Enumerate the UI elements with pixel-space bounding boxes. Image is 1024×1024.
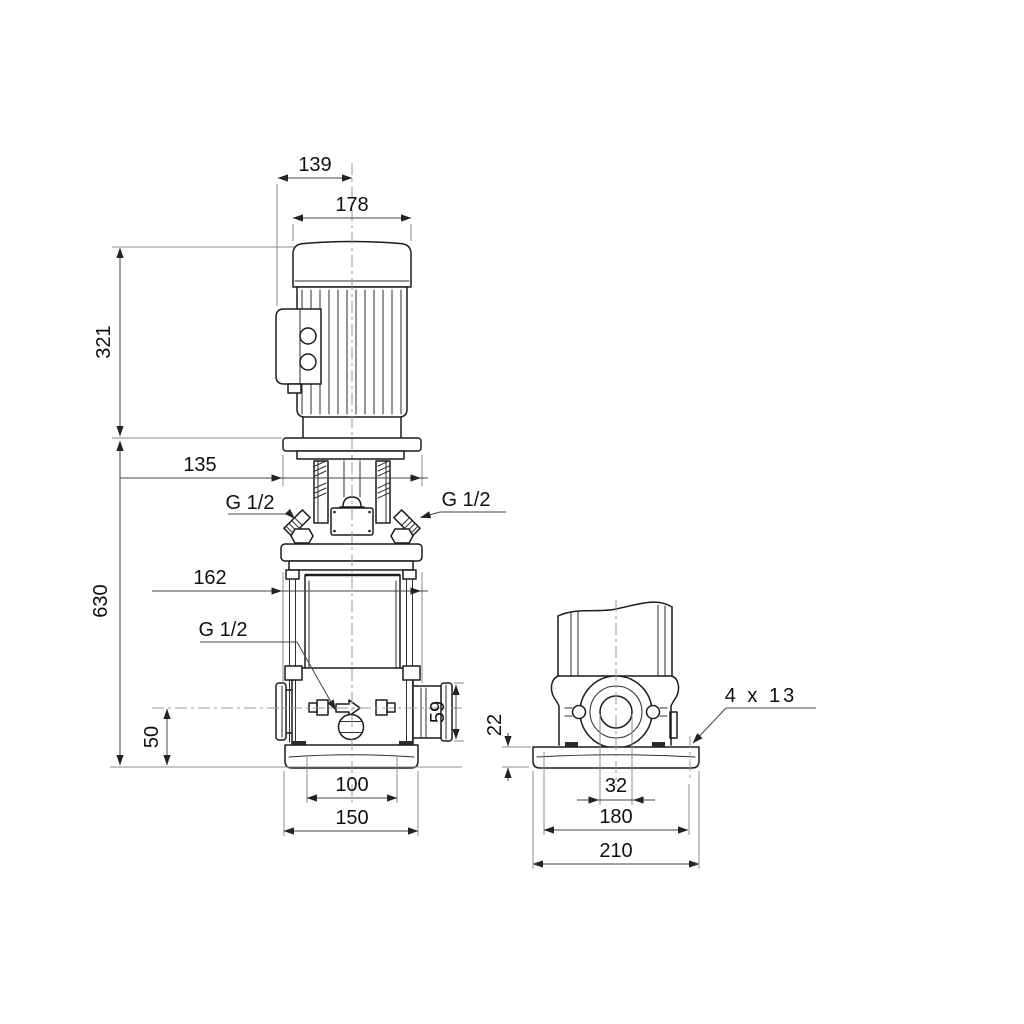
dim-port-center-height: 50 bbox=[141, 709, 167, 765]
pump-dimensional-drawing: 139 178 321 630 135 162 G 1/2 bbox=[0, 0, 1024, 1024]
pump-dimensional-drawing-page: 139 178 321 630 135 162 G 1/2 bbox=[0, 0, 1024, 1024]
dim-label-32: 32 bbox=[605, 775, 627, 797]
dim-motor-height: 321 bbox=[93, 247, 294, 438]
drain-plug bbox=[339, 715, 364, 740]
note-bolt-holes: 4 x 13 bbox=[693, 685, 816, 743]
dim-label-630: 630 bbox=[90, 584, 112, 617]
dim-label-210: 210 bbox=[599, 840, 632, 862]
front-view bbox=[276, 242, 452, 769]
flange-bolt-hole bbox=[573, 706, 586, 719]
dim-label-150: 150 bbox=[335, 807, 368, 829]
dim-label-22: 22 bbox=[484, 714, 506, 736]
thread-label-drain: G 1/2 bbox=[199, 619, 248, 641]
pump-base-casting bbox=[276, 666, 452, 744]
dim-label-100: 100 bbox=[335, 774, 368, 796]
dim-label-321: 321 bbox=[93, 325, 115, 358]
terminal-box bbox=[276, 309, 321, 393]
bolt-holes-label: 4 x 13 bbox=[725, 685, 797, 707]
hex-plug-right bbox=[391, 529, 413, 543]
cable-entry-hole bbox=[300, 328, 316, 344]
dim-label-50: 50 bbox=[141, 726, 163, 748]
break-line bbox=[558, 602, 672, 616]
thread-note-drain: G 1/2 bbox=[199, 619, 336, 710]
thread-label-left: G 1/2 bbox=[226, 492, 275, 514]
thread-label-right: G 1/2 bbox=[442, 489, 491, 511]
dim-label-178: 178 bbox=[335, 194, 368, 216]
dim-label-180: 180 bbox=[599, 806, 632, 828]
motor bbox=[276, 242, 421, 460]
cable-entry-hole bbox=[300, 354, 316, 370]
thread-note-vent-right: G 1/2 bbox=[421, 489, 507, 518]
dim-label-59: 59 bbox=[427, 701, 449, 723]
dim-total-height: 630 bbox=[90, 441, 120, 765]
thread-note-vent-left: G 1/2 bbox=[226, 492, 295, 519]
dim-label-139: 139 bbox=[298, 154, 331, 176]
flange-bolt-hole bbox=[647, 706, 660, 719]
dim-label-162: 162 bbox=[193, 567, 226, 589]
hex-plug-left bbox=[291, 529, 313, 543]
port-flange-end-view bbox=[565, 676, 677, 748]
dim-baseplate-thickness: 22 bbox=[484, 714, 531, 781]
dim-label-135: 135 bbox=[183, 454, 216, 476]
coupling-guard-right bbox=[376, 461, 390, 523]
